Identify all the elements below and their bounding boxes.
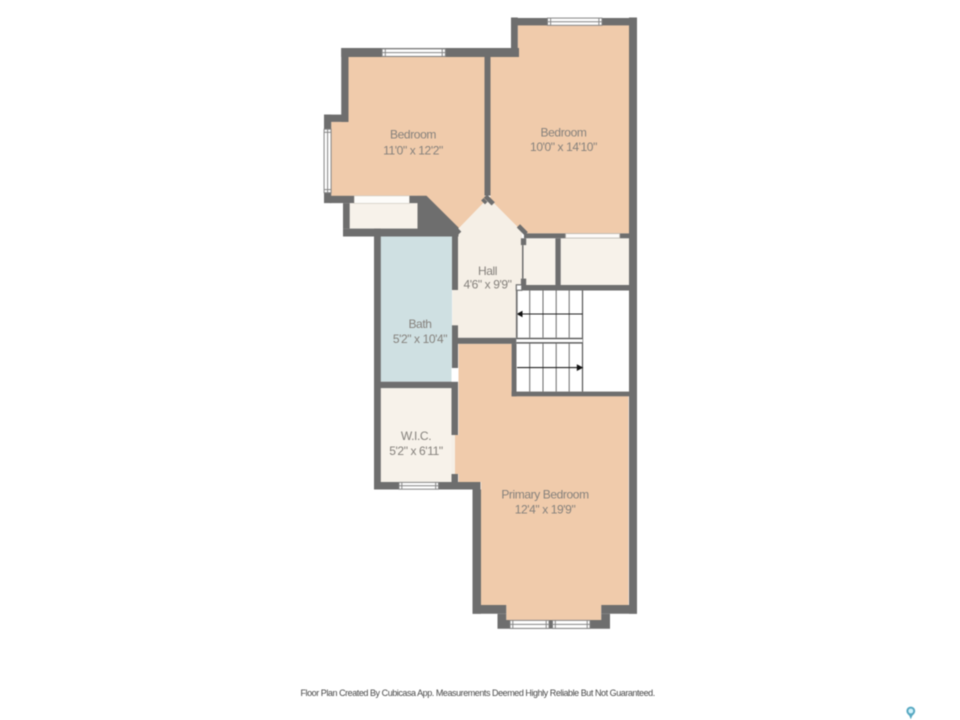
svg-text:W.I.C.: W.I.C. (401, 429, 431, 443)
svg-text:5'2" x 6'11": 5'2" x 6'11" (389, 444, 443, 458)
svg-text:Bedroom: Bedroom (541, 125, 587, 139)
svg-text:Bath: Bath (408, 317, 431, 331)
svg-text:10'0" x 14'10": 10'0" x 14'10" (530, 140, 597, 154)
svg-text:Hall: Hall (478, 264, 497, 278)
svg-text:Primary Bedroom: Primary Bedroom (501, 487, 589, 501)
svg-text:Bedroom: Bedroom (390, 128, 436, 142)
svg-text:Floor Plan Created By Cubicasa: Floor Plan Created By Cubicasa App. Meas… (301, 688, 655, 698)
svg-text:5'2" x 10'4": 5'2" x 10'4" (393, 332, 447, 346)
svg-text:12'4" x 19'9": 12'4" x 19'9" (515, 502, 576, 516)
svg-text:11'0" x 12'2": 11'0" x 12'2" (383, 143, 443, 157)
svg-text:4'6" x 9'9": 4'6" x 9'9" (463, 278, 511, 292)
